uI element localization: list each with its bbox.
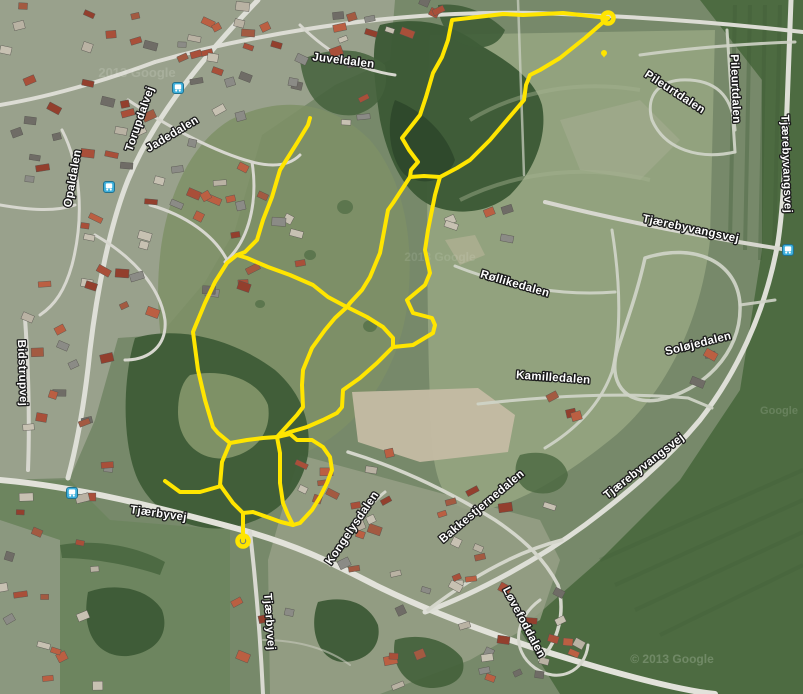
google-watermark: 2013 Google: [404, 250, 476, 264]
road-label: Bidstrupvej: [15, 339, 29, 406]
building: [120, 162, 133, 169]
road-label: Pileurtdalen: [728, 54, 742, 124]
building: [187, 138, 197, 147]
building: [16, 510, 24, 516]
building: [497, 635, 510, 644]
bus-wheel-glyph: [785, 252, 787, 254]
building: [35, 412, 47, 422]
bus-body-glyph: [785, 246, 791, 251]
building: [120, 100, 130, 109]
building: [272, 217, 287, 226]
terrain-patch: [304, 250, 316, 260]
building: [81, 222, 90, 229]
building: [18, 3, 27, 10]
building: [235, 200, 246, 211]
bus-body-glyph: [106, 183, 112, 188]
bus-wheel-glyph: [110, 189, 112, 191]
bus-stop-icon[interactable]: [104, 182, 115, 193]
building: [288, 77, 298, 87]
bus-wheel-glyph: [789, 252, 791, 254]
building: [465, 576, 477, 583]
building: [41, 594, 49, 599]
building: [481, 653, 494, 662]
building: [90, 566, 99, 572]
bus-stop-icon[interactable]: [67, 488, 78, 499]
bus-wheel-glyph: [179, 90, 181, 92]
bus-wheel-glyph: [73, 495, 75, 497]
building: [25, 176, 35, 183]
building: [101, 462, 114, 469]
building: [144, 199, 157, 205]
building: [332, 11, 344, 19]
satellite-map[interactable]: 2013 Google2013 Google© 2013 GoogleGoogl…: [0, 0, 803, 694]
building: [207, 53, 219, 63]
bus-body-glyph: [175, 84, 181, 89]
building: [31, 348, 44, 357]
terrain-patch: [0, 520, 60, 694]
building: [241, 29, 255, 37]
terrain-patch: [255, 300, 265, 308]
building: [24, 116, 37, 125]
bus-stop-icon[interactable]: [783, 245, 794, 256]
building: [498, 502, 513, 513]
building: [38, 281, 51, 287]
bus-wheel-glyph: [69, 495, 71, 497]
bus-stop-icon[interactable]: [173, 83, 184, 94]
building: [171, 165, 183, 173]
building: [563, 638, 573, 646]
building: [384, 448, 394, 458]
building: [235, 1, 250, 11]
building: [534, 671, 544, 679]
building: [42, 675, 53, 681]
building: [19, 493, 33, 501]
bus-wheel-glyph: [106, 189, 108, 191]
bus-body-glyph: [69, 489, 75, 494]
building: [357, 114, 371, 121]
gps-track-segment: [410, 176, 440, 177]
building: [389, 653, 399, 660]
building: [23, 424, 35, 431]
building: [341, 120, 351, 126]
building: [0, 583, 8, 593]
google-watermark: 2013 Google: [98, 65, 175, 80]
terrain-patch: [337, 200, 353, 214]
building: [231, 231, 241, 238]
building: [115, 269, 129, 278]
map-viewport: 2013 Google2013 Google© 2013 GoogleGoogl…: [0, 0, 803, 694]
bus-wheel-glyph: [175, 90, 177, 92]
building: [213, 180, 227, 187]
google-watermark: © 2013 Google: [630, 652, 714, 666]
google-watermark: Google: [760, 405, 798, 417]
building: [93, 681, 103, 690]
building: [106, 30, 117, 38]
building: [178, 42, 187, 48]
